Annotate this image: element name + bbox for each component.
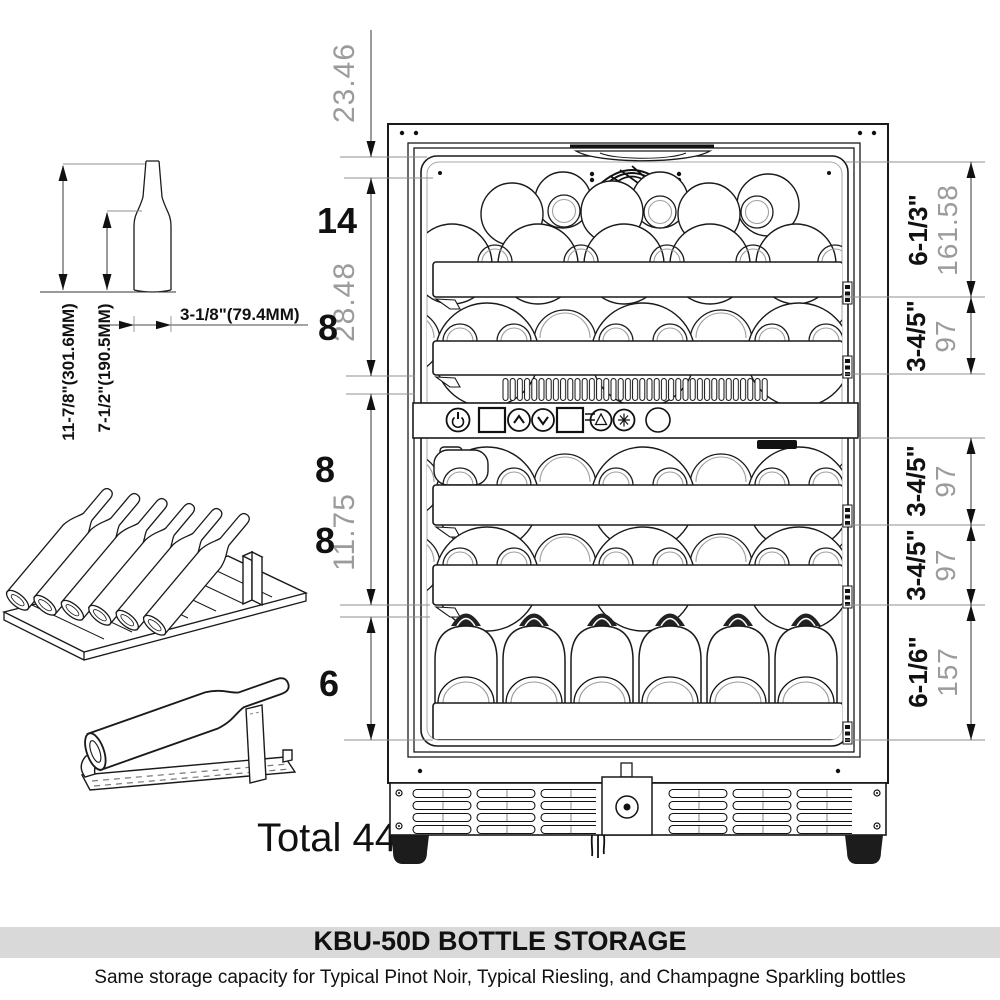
right-s3-inches: 3-4/5" [901,445,931,517]
slat-trim [502,378,768,401]
count-row4: 8 [315,520,335,561]
left-foot [391,835,429,864]
power-cord [592,835,605,858]
right-s2-mm: 97 [930,319,961,352]
right-s4-mm: 97 [930,548,961,581]
ventilation-base [390,763,886,864]
wine-cooler-front-view [378,124,896,864]
count-row5: 6 [319,663,339,704]
bottle-height-label: 11-7/8"(301.6MM) [59,303,78,441]
stand-post [246,705,266,783]
page-title: KBU-50D BOTTLE STORAGE [313,926,686,956]
right-s5-mm: 157 [932,647,963,697]
shelf-2 [433,341,843,375]
bottle-storage-diagram-page: 11-7/8"(301.6MM) 7-1/2"(190.5MM) 3-1/8"(… [0,0,1000,1000]
page-subtitle: Same storage capacity for Typical Pinot … [94,967,905,988]
right-s2-inches: 3-4/5" [901,300,931,372]
isometric-rack-drawing [3,481,306,660]
count-row2: 8 [318,307,338,348]
bottle-stand-drawing [81,665,295,790]
control-panel [413,403,858,438]
count-row1: 14 [317,200,357,241]
footer: KBU-50D BOTTLE STORAGE Same storage capa… [0,926,1000,988]
count-row3: 8 [315,449,335,490]
vent-grille-right [668,788,852,834]
bottle-diameter-label: 3-1/8"(79.4MM) [180,305,300,324]
shelf-4 [433,565,843,605]
shelf-3 [433,485,843,525]
dim-top-gap: 23.46 [328,43,361,123]
right-s1-mm: 161.58 [932,184,963,276]
left-dimension-annotations: 23.46 14 28.48 8 8 11.75 8 6 [315,30,433,740]
right-dimension-annotations: 6-1/3" 161.58 3-4/5" 97 3-4/5" 97 3-4/5"… [845,162,985,740]
diagram-canvas: 11-7/8"(301.6MM) 7-1/2"(190.5MM) 3-1/8"(… [0,0,1000,1000]
bottle-body-height-label: 7-1/2"(190.5MM) [95,304,114,433]
bottle-dimension-drawing: 11-7/8"(301.6MM) 7-1/2"(190.5MM) 3-1/8"(… [40,161,308,441]
shelf-5 [433,703,843,740]
door-lock-latch [757,440,797,449]
vent-grille-left [412,788,596,834]
right-s5-inches: 6-1/6" [903,636,933,708]
right-s4-inches: 3-4/5" [901,529,931,601]
right-s3-mm: 97 [930,464,961,497]
total-capacity-label: Total 44 [257,816,397,860]
right-s1-inches: 6-1/3" [903,194,933,266]
right-foot [845,835,883,864]
shelf-1 [433,262,843,297]
